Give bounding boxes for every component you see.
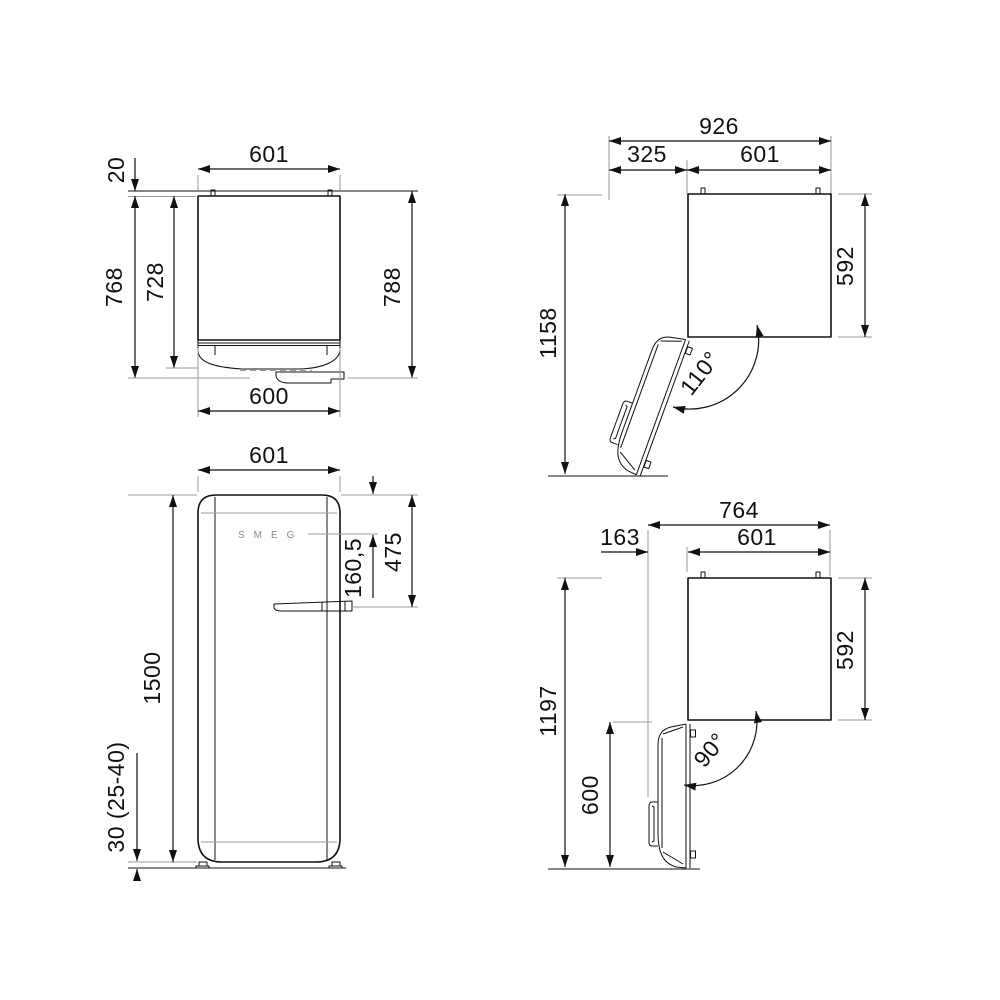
fridge-body-top-view bbox=[688, 194, 831, 337]
dim-body-width-601: 601 bbox=[737, 524, 777, 550]
hinge-pin bbox=[701, 188, 705, 194]
foot-right bbox=[332, 862, 340, 866]
dim-depth-592: 592 bbox=[832, 246, 858, 286]
view-front: SMEG 601 1500 475 160,5 30 (25-40) bbox=[103, 442, 418, 881]
dim-overall-depth-1158: 1158 bbox=[535, 307, 561, 358]
fridge-front-outline bbox=[198, 495, 340, 862]
dim-depth-728: 728 bbox=[142, 262, 168, 302]
dim-door-length-600: 600 bbox=[577, 775, 603, 815]
view-top-open-90: 764 163 601 592 1197 600 90° bbox=[535, 497, 872, 869]
fridge-body-top-view bbox=[688, 578, 831, 720]
dim-top-width: 601 bbox=[249, 141, 289, 167]
dim-handle-475: 475 bbox=[380, 532, 406, 572]
dim-door-width: 600 bbox=[249, 383, 289, 409]
door-closed-outline bbox=[198, 340, 340, 369]
dim-height-1500: 1500 bbox=[139, 651, 165, 704]
dim-depth-592: 592 bbox=[832, 630, 858, 670]
dim-wall-gap: 20 bbox=[103, 157, 129, 184]
dim-front-width: 601 bbox=[249, 442, 289, 468]
dim-overall-width-926: 926 bbox=[699, 113, 739, 139]
dim-swing-163: 163 bbox=[600, 524, 640, 550]
dim-depth-788: 788 bbox=[379, 267, 405, 307]
hinge-pin bbox=[701, 572, 705, 578]
door-open-110 bbox=[602, 327, 695, 478]
drawing-svg: 601 20 768 728 788 600 926 325 601 bbox=[0, 0, 1000, 1000]
dimension-drawing: 601 20 768 728 788 600 926 325 601 bbox=[0, 0, 1000, 1000]
door-handle-top-view bbox=[276, 372, 344, 383]
hinge-pin bbox=[816, 188, 820, 194]
dim-swing-325: 325 bbox=[627, 141, 667, 167]
dim-feet-height: 30 (25-40) bbox=[103, 741, 129, 852]
hinge-pin bbox=[816, 572, 820, 578]
foot-left bbox=[199, 862, 207, 866]
dim-overall-width-764: 764 bbox=[719, 497, 759, 523]
smeg-logo: SMEG bbox=[238, 530, 303, 541]
view-top-open-110: 926 325 601 592 1158 110° bbox=[535, 113, 872, 478]
door-open-90 bbox=[649, 724, 696, 868]
fridge-body-top-view bbox=[198, 196, 340, 340]
view-top-closed: 601 20 768 728 788 600 bbox=[101, 141, 418, 417]
dim-overall-depth-1197: 1197 bbox=[535, 685, 561, 736]
dim-depth-768: 768 bbox=[101, 267, 127, 307]
dim-logo-160-5: 160,5 bbox=[340, 538, 366, 598]
angle-label-110: 110° bbox=[675, 346, 725, 400]
dim-body-width-601: 601 bbox=[740, 141, 780, 167]
angle-label-90: 90° bbox=[688, 728, 731, 773]
